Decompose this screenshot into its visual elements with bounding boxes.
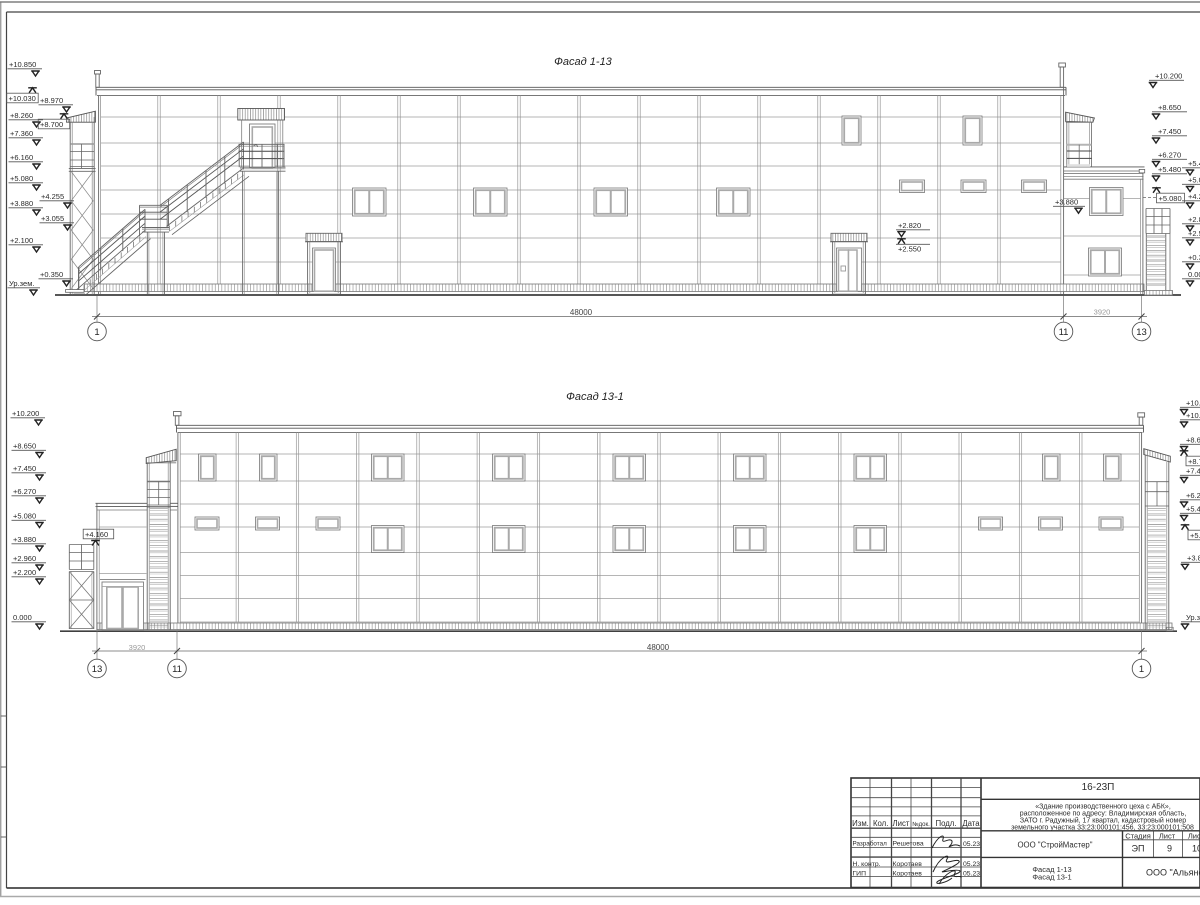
svg-text:Лист: Лист bbox=[1159, 831, 1176, 840]
svg-text:+3.880: +3.880 bbox=[1055, 198, 1078, 207]
svg-text:+10.850: +10.850 bbox=[9, 60, 36, 69]
svg-text:+10.030: +10.030 bbox=[9, 94, 36, 103]
svg-text:+4.255: +4.255 bbox=[41, 192, 64, 201]
svg-text:+10.200: +10.200 bbox=[1155, 72, 1182, 81]
svg-text:расположенное по адресу: Влади: расположенное по адресу: Владимирская об… bbox=[1020, 810, 1187, 818]
svg-text:48000: 48000 bbox=[570, 308, 593, 317]
svg-text:+3.880: +3.880 bbox=[13, 535, 36, 544]
svg-text:Коротаев: Коротаев bbox=[893, 871, 923, 878]
svg-text:+8.650: +8.650 bbox=[1158, 103, 1181, 112]
svg-text:+2.100: +2.100 bbox=[10, 236, 33, 245]
svg-text:13: 13 bbox=[1136, 327, 1147, 338]
svg-text:Ур.зем.: Ур.зем. bbox=[1186, 613, 1200, 622]
svg-text:9: 9 bbox=[1167, 844, 1172, 854]
svg-text:0.000: 0.000 bbox=[13, 613, 32, 622]
svg-text:Ур.зем.: Ур.зем. bbox=[9, 279, 34, 288]
svg-text:10: 10 bbox=[1192, 844, 1200, 854]
svg-text:ЗАТО г. Радужный, 17 квартал,: ЗАТО г. Радужный, 17 квартал, кадастровы… bbox=[1020, 817, 1186, 825]
svg-text:11: 11 bbox=[172, 664, 182, 675]
svg-text:+10.200: +10.200 bbox=[1186, 411, 1200, 420]
svg-text:3920: 3920 bbox=[1094, 308, 1111, 317]
svg-text:+2.550: +2.550 bbox=[1188, 229, 1200, 238]
svg-text:+5.480: +5.480 bbox=[1186, 505, 1200, 514]
svg-text:Фасад 13-1: Фасад 13-1 bbox=[1032, 872, 1071, 881]
svg-text:+5.080: +5.080 bbox=[1190, 531, 1200, 540]
svg-text:«Здание производственного цеха: «Здание производственного цеха с АБК», bbox=[1035, 804, 1171, 811]
svg-text:+5.480: +5.480 bbox=[1188, 159, 1200, 168]
svg-text:Разработал: Разработал bbox=[853, 840, 888, 848]
svg-text:+7.450: +7.450 bbox=[13, 464, 36, 473]
svg-text:+8.650: +8.650 bbox=[13, 442, 36, 451]
svg-text:0.000: 0.000 bbox=[1188, 270, 1200, 279]
svg-text:Лист: Лист bbox=[1188, 831, 1200, 840]
svg-text:16-23П: 16-23П bbox=[1082, 782, 1115, 793]
svg-text:11: 11 bbox=[1059, 327, 1069, 338]
svg-text:Дата: Дата bbox=[962, 819, 980, 828]
svg-text:ООО "АльянсПроект": ООО "АльянсПроект" bbox=[1146, 867, 1200, 877]
svg-text:05.23: 05.23 bbox=[963, 861, 980, 868]
svg-text:ЭП: ЭП bbox=[1132, 844, 1145, 854]
svg-text:+2.820: +2.820 bbox=[1188, 215, 1200, 224]
svg-text:+2.820: +2.820 bbox=[898, 221, 921, 230]
svg-text:Изм.: Изм. bbox=[852, 819, 869, 828]
svg-text:+2.200: +2.200 bbox=[13, 568, 36, 577]
svg-text:+3.880: +3.880 bbox=[1187, 554, 1200, 563]
svg-text:05.23: 05.23 bbox=[963, 841, 980, 848]
svg-text:+6.270: +6.270 bbox=[13, 487, 36, 496]
svg-text:+3.880: +3.880 bbox=[10, 199, 33, 208]
svg-text:+3.055: +3.055 bbox=[41, 214, 64, 223]
svg-text:Подл.: Подл. bbox=[935, 819, 956, 828]
svg-text:ООО "СтройМастер": ООО "СтройМастер" bbox=[1017, 840, 1092, 849]
svg-text:+0.350: +0.350 bbox=[40, 270, 63, 279]
svg-text:+7.450: +7.450 bbox=[1158, 127, 1181, 136]
svg-text:№док.: №док. bbox=[912, 821, 930, 828]
svg-text:+8.650: +8.650 bbox=[1186, 436, 1200, 445]
svg-text:Фасад 13-1: Фасад 13-1 bbox=[566, 391, 624, 403]
svg-text:+5.080: +5.080 bbox=[1188, 176, 1200, 185]
svg-text:Кол.: Кол. bbox=[873, 819, 888, 828]
svg-text:+5.480: +5.480 bbox=[1158, 165, 1181, 174]
svg-text:05.23: 05.23 bbox=[963, 871, 980, 878]
svg-text:48000: 48000 bbox=[647, 643, 670, 652]
svg-text:+2.550: +2.550 bbox=[898, 245, 921, 254]
svg-text:Лист: Лист bbox=[893, 819, 910, 828]
svg-text:+5.080: +5.080 bbox=[13, 512, 36, 521]
svg-text:+10.200: +10.200 bbox=[12, 409, 39, 418]
svg-text:1: 1 bbox=[94, 327, 99, 338]
svg-text:+8.700: +8.700 bbox=[40, 120, 63, 129]
svg-text:ГИП: ГИП bbox=[853, 871, 867, 878]
svg-text:3920: 3920 bbox=[129, 643, 146, 652]
svg-text:+7.360: +7.360 bbox=[10, 129, 33, 138]
svg-text:Фасад 1-13: Фасад 1-13 bbox=[554, 56, 613, 68]
svg-text:+7.450: +7.450 bbox=[1186, 467, 1200, 476]
svg-text:+2.960: +2.960 bbox=[13, 554, 36, 563]
svg-text:+6.270: +6.270 bbox=[1158, 151, 1181, 160]
svg-text:+0.350: +0.350 bbox=[1188, 253, 1200, 262]
svg-text:+4.160: +4.160 bbox=[85, 530, 108, 539]
svg-text:Коротаев: Коротаев bbox=[893, 861, 923, 868]
svg-text:1: 1 bbox=[1139, 664, 1144, 675]
svg-text:Стадия: Стадия bbox=[1125, 831, 1151, 840]
svg-text:Решетова: Решетова bbox=[893, 841, 924, 848]
svg-text:+6.160: +6.160 bbox=[10, 153, 33, 162]
svg-text:+6.270: +6.270 bbox=[1186, 491, 1200, 500]
svg-text:+8.700: +8.700 bbox=[1188, 457, 1200, 466]
svg-text:+10.850: +10.850 bbox=[1186, 399, 1200, 408]
svg-text:+4.255: +4.255 bbox=[1188, 192, 1200, 201]
svg-text:+5.080: +5.080 bbox=[1159, 194, 1182, 203]
svg-text:+8.970: +8.970 bbox=[40, 96, 63, 105]
svg-text:+5.080: +5.080 bbox=[10, 174, 33, 183]
svg-text:13: 13 bbox=[92, 664, 103, 675]
svg-text:Н. контр.: Н. контр. bbox=[853, 861, 881, 868]
svg-text:+8.260: +8.260 bbox=[10, 111, 33, 120]
